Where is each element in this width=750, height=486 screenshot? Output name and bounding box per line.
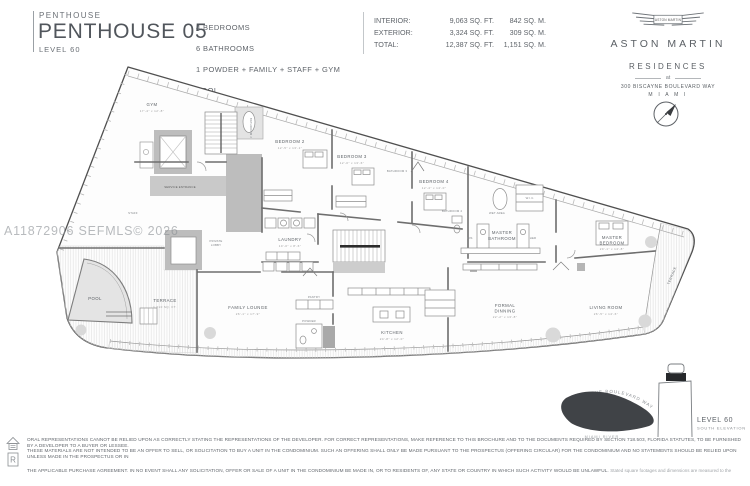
label-his: HIS <box>467 236 472 240</box>
room-dim: 12'-4" x 14'-0" <box>422 186 446 190</box>
disclaimer-line: ORAL REPRESENTATIONS CANNOT BE RELIED UP… <box>27 437 746 448</box>
floor-plan-drawing: GYM 17'-4" x 12'-8" BEDROOM 2 12'-5" x 1… <box>0 0 750 486</box>
building-elevation: LEVEL 60 SOUTH ELEVATION <box>658 364 746 437</box>
room-dim: 1,010 SQ. FT. <box>153 305 177 309</box>
room-label-master-bedroom2: BEDROOM <box>599 241 624 246</box>
room-label-bedroom4: BEDROOM 4 <box>419 179 449 184</box>
disclaimer-line: THESE MATERIALS ARE NOT INTENDED TO BE A… <box>27 448 746 459</box>
room-dim: 26'-1" x 17'-9" <box>236 312 260 316</box>
room-label-master-bathroom: MASTER <box>492 230 512 235</box>
room-label-terrace-west: TERRACE <box>153 298 176 303</box>
room-label-formal-dining: FORMAL <box>495 303 516 308</box>
room-dim: 10'-0" x 8'-6" <box>279 244 301 248</box>
room-label-master-bedroom: MASTER <box>602 235 622 240</box>
mls-watermark: A11872906 SEFMLS© 2026 <box>4 224 179 238</box>
label-bathroom3: BATHROOM 3 <box>387 169 408 173</box>
room-dim: 17'-4" x 12'-8" <box>140 109 164 113</box>
room-dim: 22'-2" x 13'-8" <box>493 315 517 319</box>
label-wet-area: WET AREA <box>489 211 505 215</box>
room-label-laundry: LAUNDRY <box>278 237 301 242</box>
disclaimer: ORAL REPRESENTATIONS CANNOT BE RELIED UP… <box>27 437 746 486</box>
staircase-upper <box>205 112 237 154</box>
room-label-pool: POOL <box>88 296 102 301</box>
label-her: HER <box>530 236 537 240</box>
room-dim: 26'-5" x 14'-6" <box>594 312 618 316</box>
label-private-lobby2: LOBBY <box>211 243 221 247</box>
label-bathroom4: BATHROOM 4 <box>442 209 463 213</box>
equal-housing-icon <box>7 438 19 450</box>
label-staff: STAFF <box>128 211 138 215</box>
svg-text:R: R <box>10 456 16 465</box>
realtor-icon: R <box>8 453 18 466</box>
room-label-living-room: LIVING ROOM <box>589 305 622 310</box>
room-label-kitchen: KITCHEN <box>381 330 403 335</box>
room-label-gym: GYM <box>147 102 158 107</box>
label-pantry: PANTRY <box>308 295 320 299</box>
room-label-formal-dining2: DINNING <box>495 309 516 314</box>
room-dim: 12'-5" x 13'-1" <box>278 146 302 150</box>
compass-icon <box>654 102 678 126</box>
room-label-master-bathroom2: BATHROOM <box>488 236 516 241</box>
elevation-view-label: SOUTH ELEVATION <box>697 426 746 431</box>
room-dim: 20'-1" x 14'-8" <box>600 247 624 251</box>
label-service-entrance: SERVICE ENTRANCE <box>164 185 196 189</box>
room-dim: 12'-0" x 13'-6" <box>340 161 364 165</box>
label-bathroom2: BATHROOM 2 <box>249 118 253 139</box>
brochure-page: PENTHOUSE PENTHOUSE 05 LEVEL 60 4 BEDROO… <box>0 0 750 486</box>
room-label-family-lounge: FAMILY LOUNGE <box>228 305 267 310</box>
elevation-level-label: LEVEL 60 <box>697 417 733 424</box>
label-wic: W.I.C. <box>526 196 535 200</box>
disclaimer-bold-part: THE APPLICABLE PURCHASE AGREEMENT. IN NO… <box>27 468 610 473</box>
site-map: BISCAYNE BOULEVARD WAY MIAMI RIVER <box>561 389 656 439</box>
disclaimer-line: THE APPLICABLE PURCHASE AGREEMENT. IN NO… <box>27 459 746 486</box>
room-label-bedroom2: BEDROOM 2 <box>275 139 305 144</box>
staircase-main <box>333 230 385 273</box>
label-powder: POWDER <box>302 319 316 323</box>
room-label-bedroom3: BEDROOM 3 <box>337 154 367 159</box>
room-dim: 24'-8" x 12'-0" <box>380 337 404 341</box>
